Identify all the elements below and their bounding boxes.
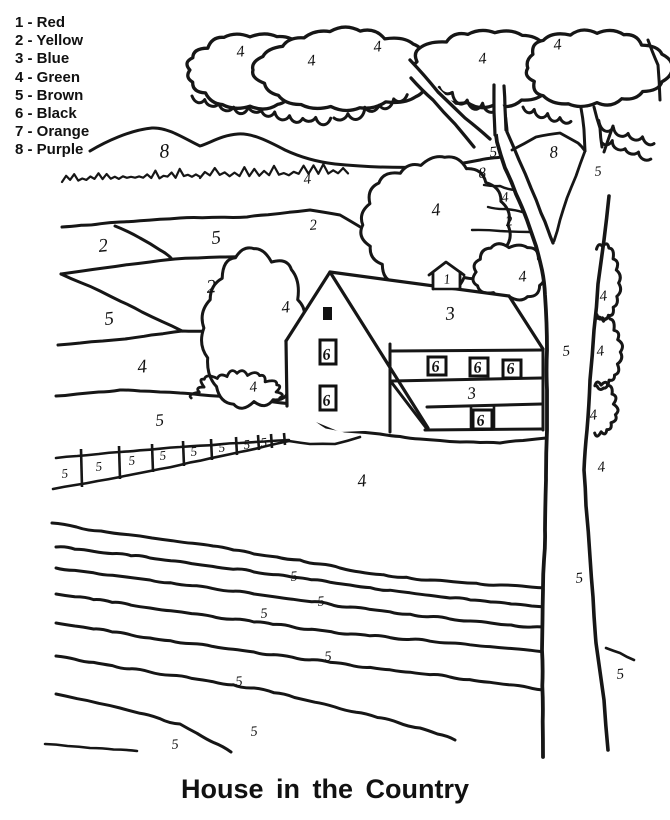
svg-text:3: 3	[465, 383, 476, 403]
svg-text:3: 3	[443, 303, 456, 325]
svg-text:3 - Blue: 3 - Blue	[15, 50, 69, 67]
svg-text:5 - Brown: 5 - Brown	[15, 87, 83, 104]
svg-text:6 - Black: 6 - Black	[15, 105, 77, 122]
svg-text:2 - Yellow: 2 - Yellow	[15, 32, 83, 49]
svg-text:8 - Purple: 8 - Purple	[15, 141, 83, 158]
svg-text:House in the Country: House in the Country	[181, 774, 469, 804]
svg-text:7 - Orange: 7 - Orange	[15, 123, 89, 140]
svg-text:1 - Red: 1 - Red	[15, 14, 65, 31]
svg-text:4 - Green: 4 - Green	[15, 69, 80, 86]
